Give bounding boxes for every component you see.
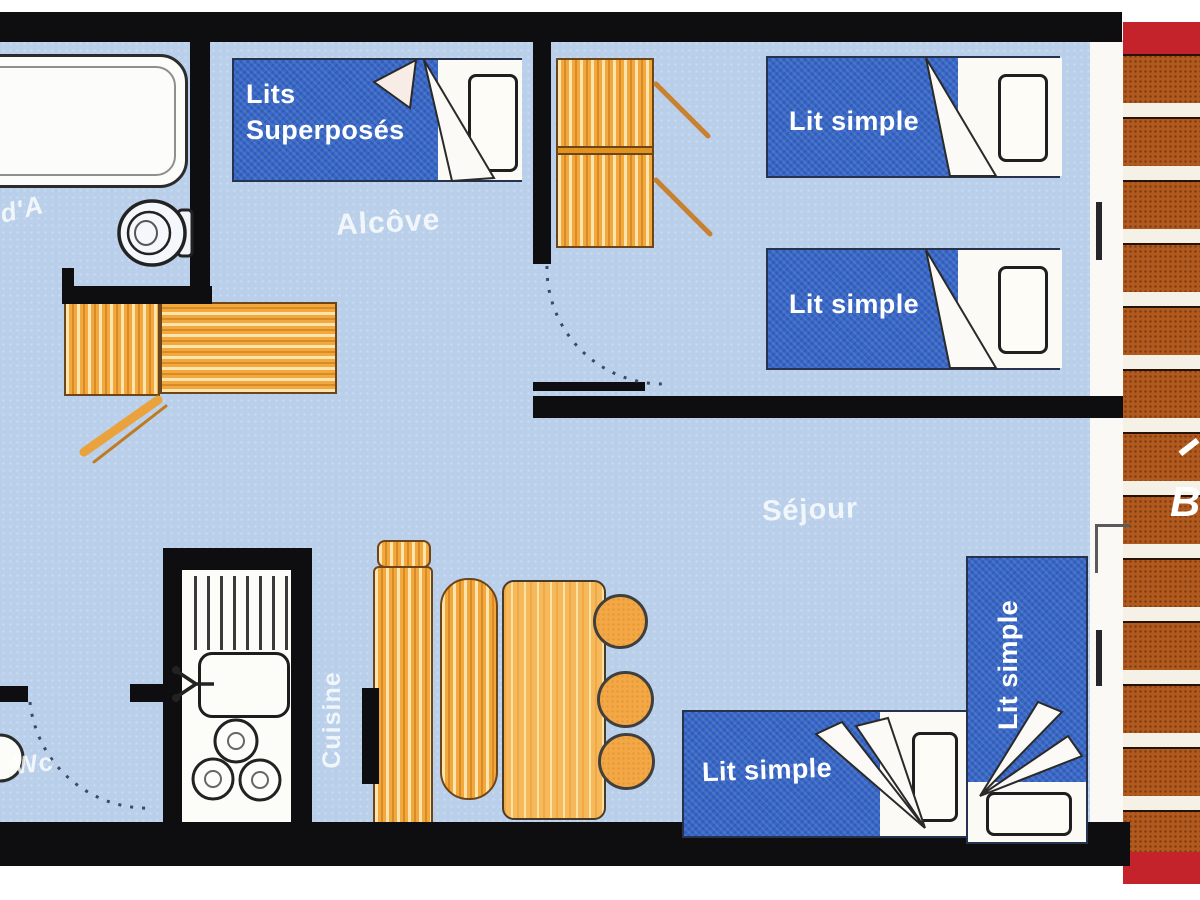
wall-kitchen-left [163, 548, 182, 822]
window-wall-strip [1090, 42, 1123, 822]
dining-table [502, 580, 606, 820]
stool-1 [593, 594, 648, 649]
bed-single-bottom-h-pillow [912, 732, 958, 822]
wardrobe-shelf [558, 146, 652, 155]
counter-cap [377, 540, 431, 568]
wall-divider-ledge [533, 382, 645, 391]
dining-bench [440, 578, 498, 800]
bed-single-bottom-v-label: Lit simple [990, 565, 1022, 765]
window-mullion-1 [1096, 202, 1102, 260]
room-label-sejour: Séjour [761, 492, 858, 528]
wall-divider-main [533, 396, 1123, 418]
kitchen-counter [182, 570, 291, 822]
room-label-cuisine: Cuisine [318, 640, 350, 800]
wall-kitchen-top [163, 548, 312, 570]
wall-alcove-vertical [533, 42, 551, 264]
red-band-bottom [1123, 852, 1200, 884]
bed-single-top-1-label: Lit simple [789, 103, 919, 139]
tall-counter [373, 566, 433, 832]
wall-bathroom-vertical [190, 42, 210, 304]
window-mullion-2 [1096, 630, 1102, 686]
wall-kitchen-right [291, 548, 312, 822]
floor-plan: Lits Superposés Lit simple Lit simple Li… [0, 0, 1200, 900]
bathtub-inner-rim [0, 66, 176, 176]
room-label-alcove: Alcôve [335, 203, 441, 242]
wall-top [0, 12, 1122, 42]
wall-bathroom-horizontal [62, 286, 212, 304]
balcony-brick-wall [1123, 54, 1200, 852]
bed-single-top-2-label: Lit simple [789, 286, 919, 322]
kitchen-sink-icon [198, 652, 290, 718]
stool-2 [597, 671, 654, 728]
bed-bunk-pillow [468, 74, 518, 172]
wall-dining-vertical [362, 688, 379, 784]
bathtub-icon [0, 54, 188, 188]
stool-3 [598, 733, 655, 790]
bed-single-top-1-pillow [998, 74, 1048, 162]
kitchen-drainer-icon [194, 576, 288, 650]
entry-closet-vertical [64, 300, 160, 396]
wall-bathroom-stub [62, 268, 74, 288]
wall-wc-left [0, 686, 28, 702]
balcony-label-fragment: B [1170, 478, 1200, 526]
entry-closet-horizontal [160, 302, 337, 394]
bed-single-bottom-v-pillow [986, 792, 1072, 836]
bed-single-bottom-vertical [966, 556, 1088, 844]
bed-single-top-2-pillow [998, 266, 1048, 354]
balcony-door-frame [1095, 524, 1130, 573]
red-band-top [1123, 22, 1200, 54]
bed-single-bottom-h-label: Lit simple [701, 750, 832, 791]
room-label-wc: Wc [13, 748, 55, 781]
bed-bunk-label: Lits Superposés [246, 76, 405, 148]
